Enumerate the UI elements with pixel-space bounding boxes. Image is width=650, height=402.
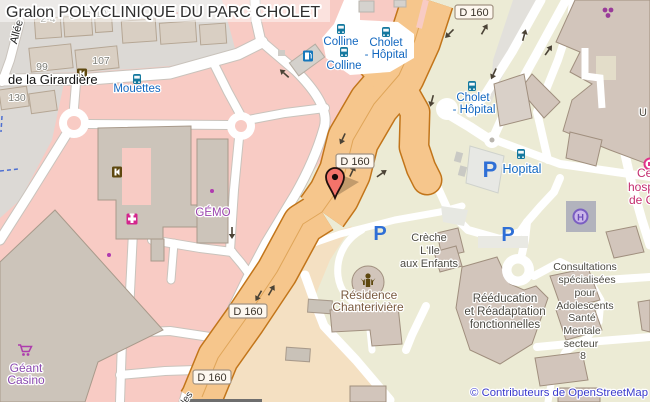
svg-text:D 160: D 160 xyxy=(340,156,369,168)
svg-text:pour: pour xyxy=(574,287,596,299)
svg-text:U: U xyxy=(639,107,647,119)
svg-text:Crèche: Crèche xyxy=(411,232,446,244)
svg-text:Colline: Colline xyxy=(326,60,361,72)
svg-text:107: 107 xyxy=(92,55,110,67)
svg-text:fonctionnelles: fonctionnelles xyxy=(470,319,541,331)
svg-text:H: H xyxy=(577,213,584,224)
svg-text:GÉMO: GÉMO xyxy=(195,206,230,219)
svg-text:Cholet: Cholet xyxy=(456,92,490,104)
svg-text:P: P xyxy=(483,157,498,182)
svg-text:130: 130 xyxy=(8,92,26,104)
svg-text:L'Ile: L'Ile xyxy=(420,245,440,257)
svg-text:D 160: D 160 xyxy=(233,306,262,318)
svg-text:de la Girardière: de la Girardière xyxy=(8,72,98,87)
svg-text:Rééducation: Rééducation xyxy=(473,293,538,305)
svg-text:© Contributeurs de OpenStreetM: © Contributeurs de OpenStreetMap xyxy=(470,387,648,399)
svg-text:- Hôpital: - Hôpital xyxy=(453,104,496,116)
svg-text:aux Enfants: aux Enfants xyxy=(400,258,459,270)
svg-text:spécialisées: spécialisées xyxy=(558,274,615,286)
svg-text:Adolescents: Adolescents xyxy=(556,300,613,312)
svg-text:hospit: hospit xyxy=(628,180,650,194)
svg-text:Chanterivière: Chanterivière xyxy=(332,300,404,314)
svg-text:Cen: Cen xyxy=(637,166,650,180)
svg-text:Casino: Casino xyxy=(7,373,45,387)
svg-text:Consultations: Consultations xyxy=(553,261,617,273)
svg-text:P: P xyxy=(373,223,386,245)
svg-text:Gralon POLYCLINIQUE DU PARC CH: Gralon POLYCLINIQUE DU PARC CHOLET xyxy=(6,4,320,21)
svg-text:8: 8 xyxy=(580,350,586,362)
svg-text:Santé: Santé xyxy=(568,312,596,324)
svg-text:et Réadaptation: et Réadaptation xyxy=(464,306,545,318)
svg-text:secteur: secteur xyxy=(564,338,599,350)
svg-text:P: P xyxy=(501,224,514,246)
svg-text:D 160: D 160 xyxy=(197,372,226,384)
svg-text:- Hôpital: - Hôpital xyxy=(365,49,408,61)
svg-text:Colline: Colline xyxy=(323,36,358,48)
svg-text:Hopital: Hopital xyxy=(503,162,542,176)
svg-text:D 160: D 160 xyxy=(459,7,488,19)
svg-text:Cholet: Cholet xyxy=(369,37,403,49)
svg-text:Mouettes: Mouettes xyxy=(113,83,161,95)
svg-text:de Ch: de Ch xyxy=(629,193,650,207)
svg-text:99: 99 xyxy=(36,61,48,73)
svg-text:Mentale: Mentale xyxy=(563,325,601,337)
